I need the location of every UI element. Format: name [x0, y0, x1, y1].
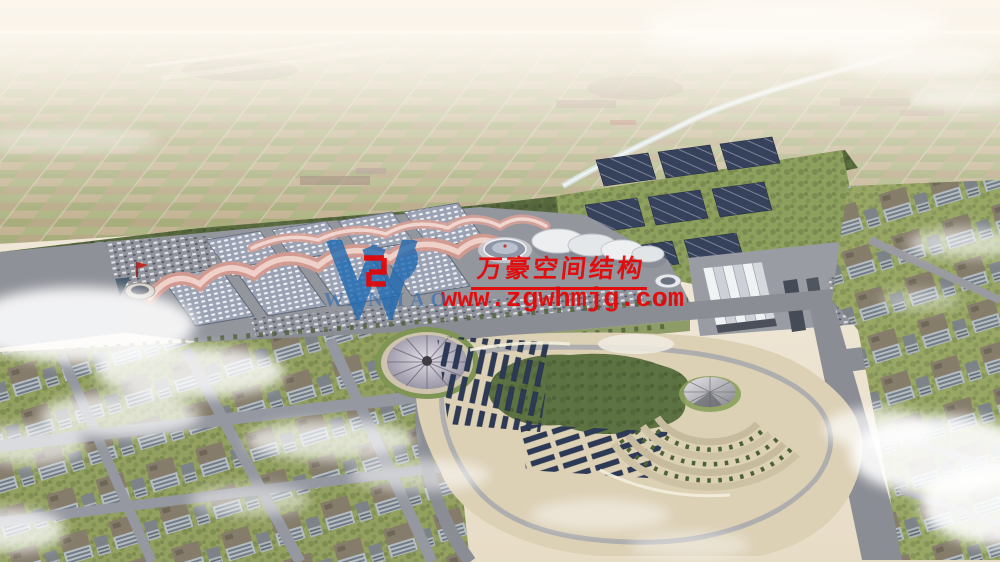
watermark-website: www.zgwhmjg.com	[441, 285, 684, 315]
logo-wordmark: WANHAO	[320, 289, 456, 312]
gravel-patch	[598, 334, 674, 354]
park-panel-rows-west	[437, 336, 553, 432]
cone-pavilion	[679, 376, 741, 412]
sky-haze-overlay	[0, 0, 1000, 130]
rendering-canvas: WANHAO 万豪空间结构 www.zgwhmjg.com	[0, 0, 1000, 562]
watermark-company-name: 万豪空间结构	[471, 249, 651, 290]
